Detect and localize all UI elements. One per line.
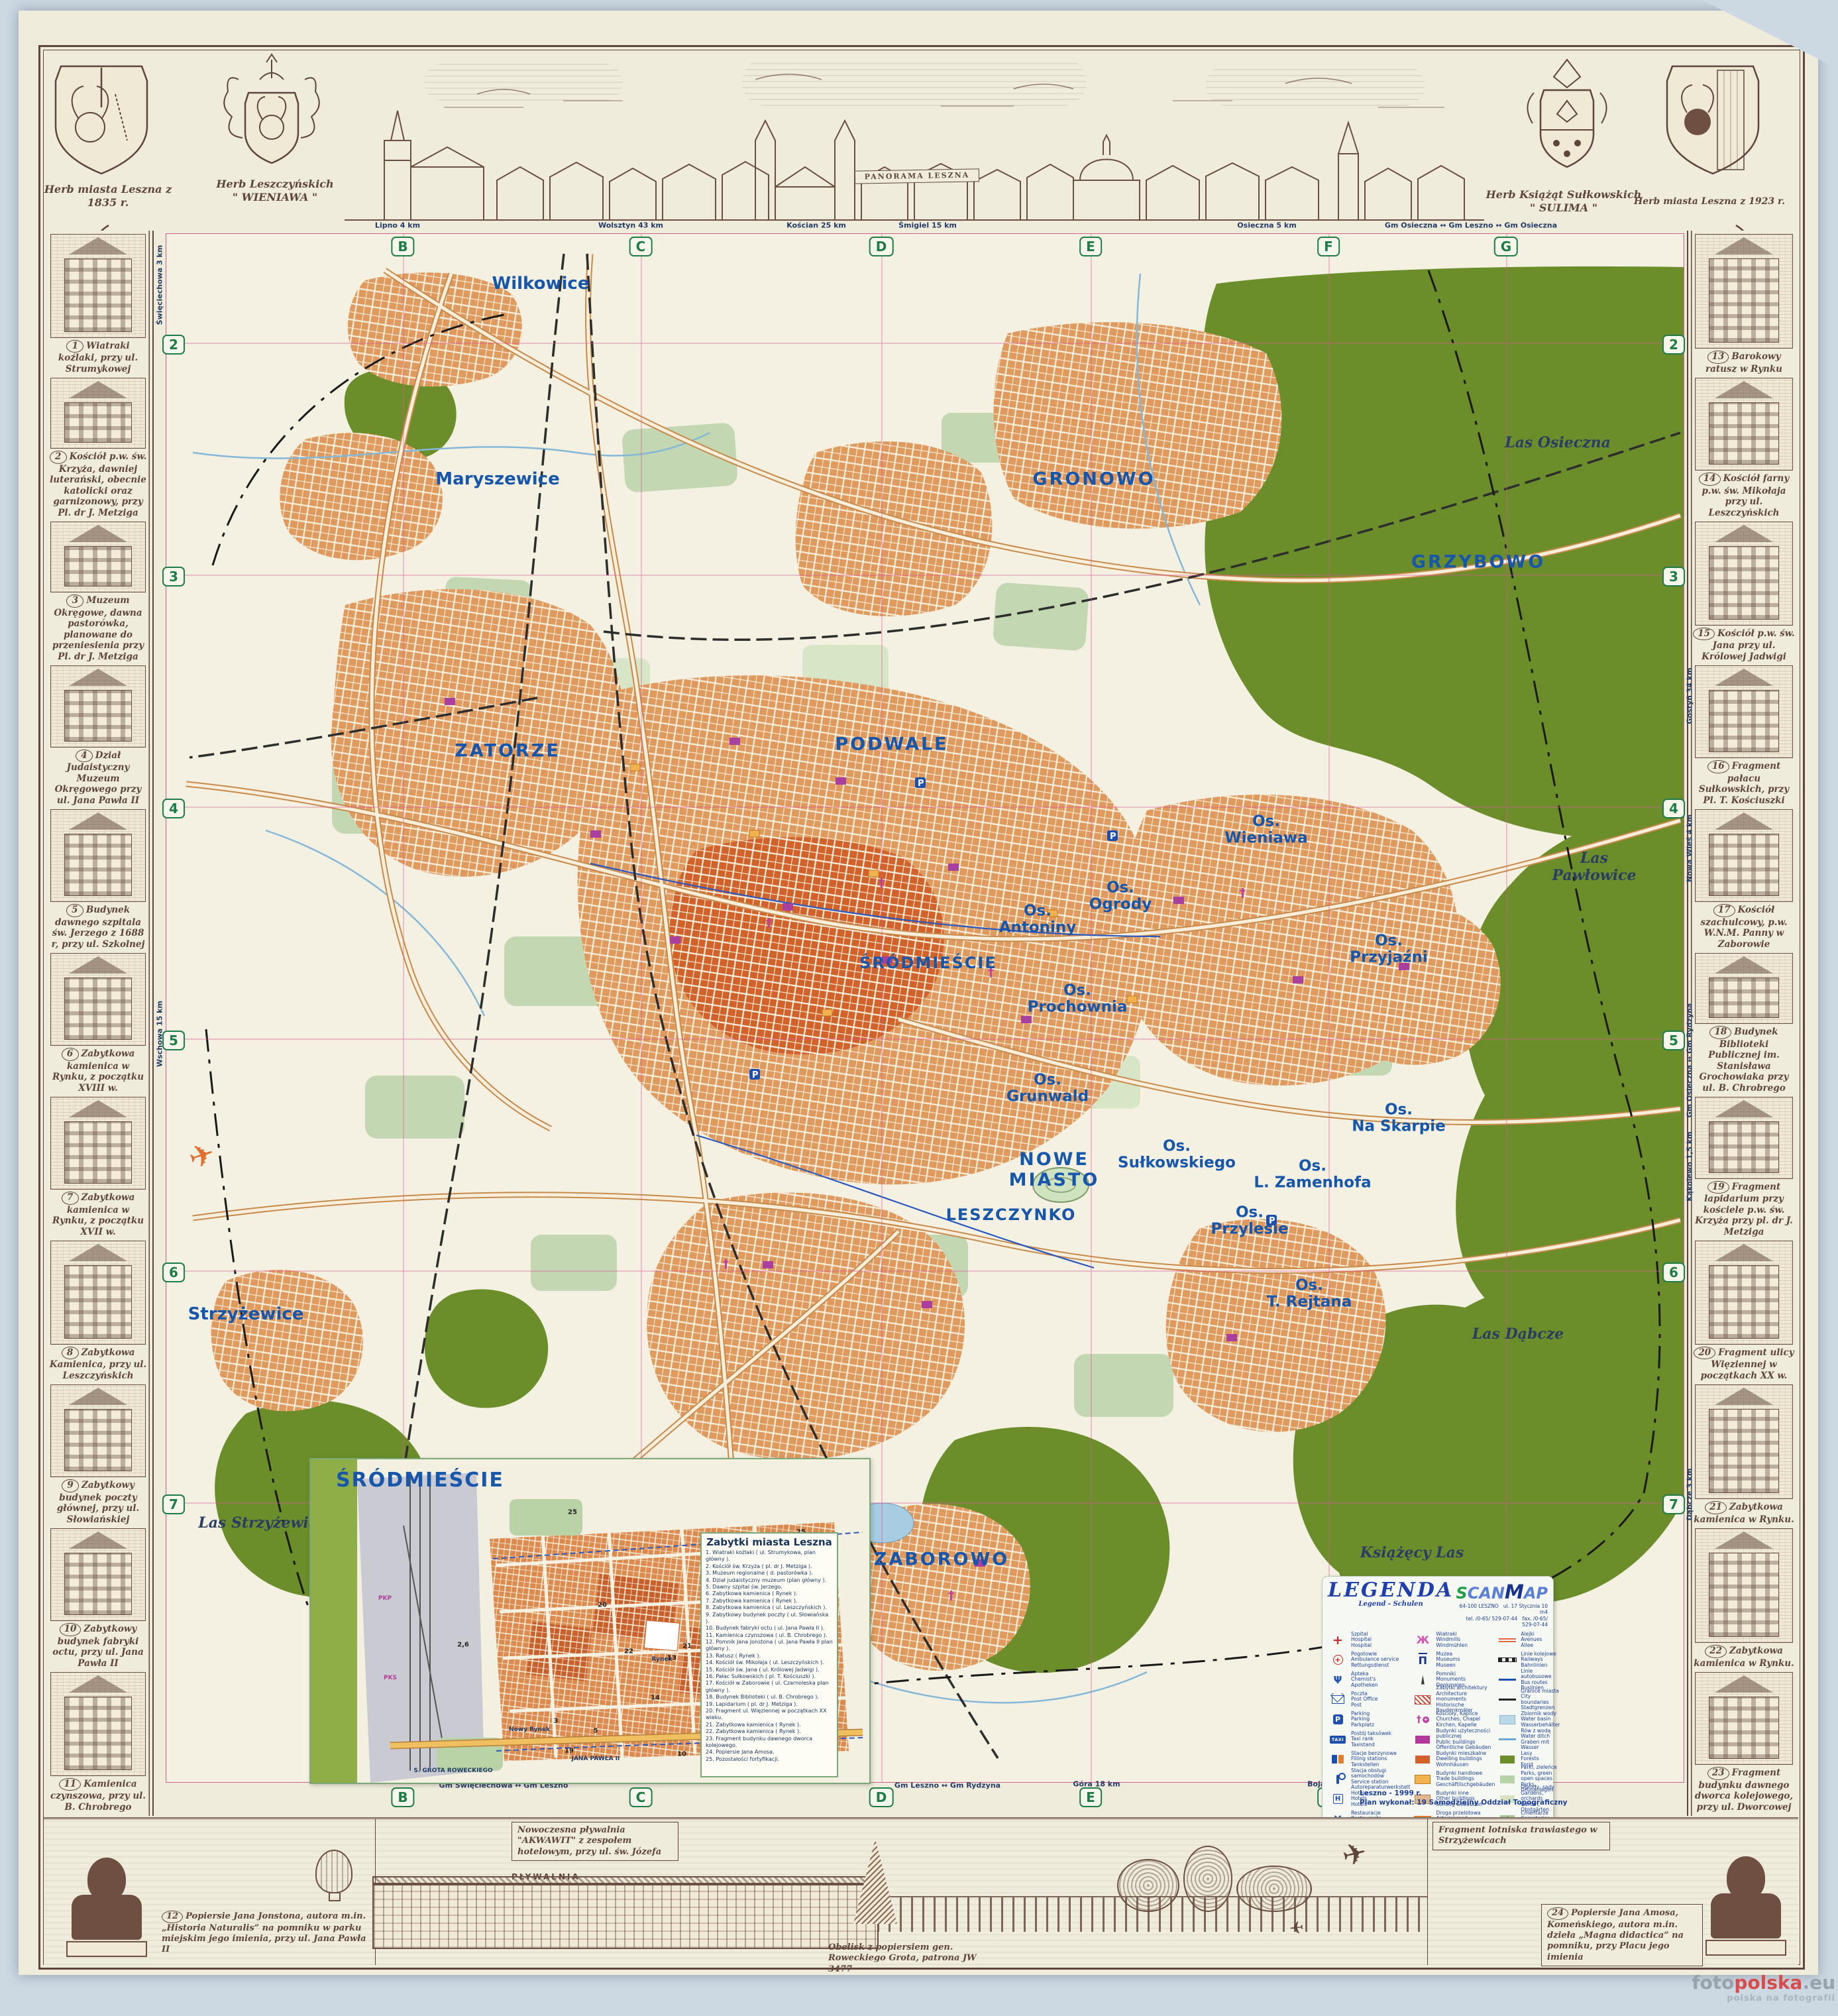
landmark-entry: 17Kościół szachulcowy, p.w. W.N.M. Panny…: [1688, 806, 1800, 950]
legend-column-1: SzpitalHospitalHospital PogotowieAmbulan…: [1328, 1630, 1410, 1849]
left-landmarks-column: 1Wiatraki koźlaki, przy ul. Strumykowej …: [44, 231, 154, 1816]
svg-text:†: †: [766, 916, 772, 930]
legend-text-de: Museen: [1436, 1662, 1455, 1668]
legend-entry-text: AlejkiAvenuesAllee: [1521, 1632, 1542, 1649]
monument-item: 13. Ratusz ( Rynek ).: [706, 1653, 833, 1659]
grid-row-marker: 2: [1662, 335, 1685, 355]
grid-row-marker: 4: [162, 799, 185, 818]
airplane-drawing-icon: ✈: [1338, 1835, 1370, 1874]
landmark-number: 6: [62, 1048, 79, 1061]
legend-column-2: WiatrakiWindmillsWindmühlen MuzeaMuseums…: [1413, 1630, 1495, 1849]
grid-row-marker: 6: [162, 1262, 185, 1282]
legend-entry: Rów z wodąWater ditchGraben mit Wasser: [1497, 1730, 1560, 1750]
legend-icon: [1497, 1673, 1517, 1687]
landmark-number: 8: [62, 1347, 79, 1360]
legend-entry: MuzeaMuseumsMuseen: [1413, 1650, 1495, 1670]
landmark-number: 21: [1705, 1501, 1727, 1514]
inset-number: 25: [568, 1509, 577, 1516]
legend-entry: Linie kolejoweRailwaysBahnlinien: [1497, 1650, 1560, 1670]
landmark-entry: 19Fragment lapidarium przy kościele p.w.…: [1688, 1093, 1800, 1237]
monuments-list-items: 1. Wiatraki koźlaki ( ul. Strumykowa, pl…: [706, 1549, 833, 1763]
monument-item: 5. Dawny szpital św. Jerzego.: [706, 1584, 833, 1591]
legend-title: LEGENDA: [1328, 1581, 1454, 1600]
landmark-sketch: [50, 1528, 146, 1621]
landmark-sketch: [1695, 665, 1793, 758]
legend-entry: Budynki mieszkalneDwelling buildingsWohn…: [1413, 1750, 1495, 1769]
landmark-entry: 21Zabytkowa kamienica w Rynku.: [1688, 1381, 1800, 1525]
landmark-sketch: [50, 234, 146, 338]
landmark-number: 17: [1713, 904, 1735, 917]
landmark-entry: 9Zabytkowy budynek poczty głównej, przy …: [44, 1381, 152, 1525]
landmark-sketch: [1695, 953, 1793, 1024]
coat-of-arms-sulima: [1514, 50, 1620, 183]
edge-label: Święciechowa 3 km: [156, 245, 164, 325]
inset-place-label: PKS: [384, 1675, 397, 1681]
landmark-caption: 18Budynek Biblioteki Publicznej im. Stan…: [1688, 1026, 1800, 1093]
tree-drawing: [1117, 1859, 1179, 1912]
landmark-entry: 2Kościół p.w. św. Krzyża, dawniej lutera…: [44, 374, 152, 518]
legend-text-de: Windmühlen: [1436, 1642, 1468, 1648]
legend-entry: AptekaChemist'sApotheken: [1328, 1670, 1410, 1690]
akwawit-caption: Nowoczesna pływalnia "AKWAWIT" z zespołe…: [512, 1822, 678, 1861]
legend-entry-text: Stacje benzynoweFilling stationsTankstel…: [1351, 1751, 1397, 1768]
grid-row-marker: 7: [1662, 1494, 1685, 1514]
legend-text-pl: Stacja obsługi samochodów: [1351, 1767, 1386, 1779]
landmark-caption: 22Zabytkowa kamienica w Rynku.: [1688, 1645, 1800, 1669]
legend-entry-text: MuzeaMuseumsMuseen: [1436, 1652, 1460, 1669]
legend-entry-text: PogotowieAmbulance serviceRettungsdienst: [1351, 1652, 1399, 1669]
inset-place-label: Nowy Rynek: [509, 1726, 550, 1733]
legend-entry: Budynki handloweTrade buildingsGeschäftl…: [1413, 1769, 1495, 1789]
legend-icon: [1328, 1753, 1348, 1766]
legend-text-de: Geschäftlischgebäuden: [1436, 1781, 1495, 1787]
grid-row-marker: 6: [1662, 1262, 1685, 1282]
legend-entry-text: Budynki mieszkalneDwelling buildingsWohn…: [1436, 1751, 1486, 1768]
edge-label: Góra 18 km: [1073, 1780, 1120, 1789]
legend-text-de: Stadtgrenzen: [1521, 1705, 1554, 1710]
landmark-sketch: [1695, 1097, 1793, 1179]
bottom-vignettes-strip: 12Popiersie Jana Jonstona, autora m.in. …: [44, 1817, 1798, 1965]
legend-icon: [1328, 1733, 1348, 1746]
legend-entry-text: AptekaChemist'sApotheken: [1351, 1671, 1378, 1689]
watermark-part: foto: [1692, 1972, 1734, 1993]
legend-icon: [1497, 1693, 1517, 1707]
landmark-sketch: [1695, 1672, 1793, 1765]
watermark-part: .eu: [1802, 1972, 1835, 1993]
komensky-caption: 24Popiersie Jana Amosa, Komeńskiego, aut…: [1541, 1904, 1703, 1966]
landmark-caption: 5Budynek dawnego szpitala św. Jerzego z …: [44, 904, 152, 950]
inset-number: 20: [598, 1602, 607, 1609]
landmark-number: 23: [1707, 1767, 1729, 1780]
legend-entry: Stacje benzynoweFilling stationsTankstel…: [1328, 1750, 1410, 1769]
monument-item: 11. Kamienica czynszowa ( ul. B. Chrobre…: [706, 1632, 833, 1639]
svg-text:†: †: [948, 1589, 954, 1602]
legend-entry: Zbiornik wodyWater basinWasserbehälter: [1497, 1710, 1560, 1730]
grid-col-marker: C: [629, 237, 653, 256]
landmark-number: 7: [62, 1192, 79, 1205]
coat-of-arms-1835: [52, 61, 151, 180]
publisher-logo: SCANMAP 64-100 LESZNO ul. 17 Stycznia 10…: [1454, 1581, 1548, 1628]
panorama-ribbon: PANORAMA LESZNA: [855, 168, 979, 184]
landmark-sketch: [1695, 1384, 1793, 1499]
legend-text-de: Kirchen, Kapelle: [1436, 1722, 1476, 1728]
landmark-number: 13: [1707, 351, 1729, 364]
legend-text-de: Rettungsdienst: [1351, 1662, 1389, 1668]
legend-entry: WiatrakiWindmillsWindmühlen: [1413, 1630, 1495, 1650]
landmark-caption: 14Kościół farny p.w. św. Mikołaja przy u…: [1688, 473, 1800, 518]
landmark-entry: 4Dział Judaistyczny Muzeum Okręgowego pr…: [44, 662, 152, 806]
grid-col-marker: E: [1079, 237, 1102, 256]
airfield-plane-icon: ✈: [184, 1135, 219, 1176]
edge-label: Śmigiel 15 km: [898, 221, 957, 230]
monument-item: 6. Zabytkowa kamienica ( Rynek ).: [706, 1591, 833, 1597]
legend-text-de: Bahnlinien: [1521, 1662, 1547, 1668]
edge-label: Dąbcze 3 km: [1686, 1469, 1694, 1521]
svg-text:†: †: [879, 876, 885, 890]
monument-item: 22. Zabytkowa kamienica ( Rynek ).: [706, 1728, 833, 1735]
landmark-entry: 23Fragment budynku dawnego dworca kolejo…: [1688, 1669, 1800, 1813]
landmark-number: 20: [1694, 1347, 1715, 1360]
landmark-number: 3: [66, 594, 83, 608]
edge-label: Kąkolewo 1,5 km: [1686, 1131, 1694, 1201]
landmark-entry: 1Wiatraki koźlaki, przy ul. Strumykowej: [44, 231, 152, 374]
coat-of-arms-wieniawa: [219, 53, 325, 179]
komensky-bust-drawing: [1703, 1856, 1789, 1956]
legend-icon: [1328, 1793, 1348, 1806]
landmark-number: 22: [1705, 1645, 1727, 1658]
monument-item: 20. Fragment ul. Więziennej w początkach…: [706, 1708, 833, 1722]
legend-entry-text: Granice miastaCity boundariesStadtgrenze…: [1521, 1689, 1560, 1711]
coat-caption-wieniawa-line2: " WIENIAWA ": [199, 191, 351, 204]
landmark-entry: 22Zabytkowa kamienica w Rynku.: [1688, 1525, 1800, 1669]
legend-text-de: Allee: [1521, 1642, 1533, 1648]
landmark-caption: 15Kościół p.w. św. Jana przy ul. Królowe…: [1688, 628, 1800, 662]
inset-number: 13: [667, 1655, 676, 1662]
coat-caption-wieniawa: Herb Leszczyńskich " WIENIAWA ": [199, 178, 351, 204]
grid-row-marker: 5: [1662, 1031, 1685, 1050]
monument-item: 4. Dział judaistyczny muzeum (plan główn…: [706, 1577, 833, 1584]
grid-col-marker: D: [869, 1787, 894, 1807]
legend-icon: [1328, 1713, 1348, 1726]
legend-entry-text: Kościoły, KapliceChurches, ChapelKirchen…: [1436, 1711, 1480, 1728]
monument-item: 15. Kościół św. Jana ( ul. Królowej Jadw…: [706, 1667, 833, 1673]
legend-icon: [1413, 1693, 1433, 1707]
legend-column-3: AlejkiAvenuesAllee Linie kolejoweRailway…: [1497, 1630, 1560, 1849]
legend-text-de: Parkplatz: [1351, 1722, 1374, 1728]
landmark-sketch: [50, 953, 146, 1046]
city-centre-inset-map: ŚRÓDMIEŚCIE Rynek Nowy Rynek PKP PKS JAN…: [309, 1458, 871, 1784]
airfield-caption: Fragment lotniska trawiastego w Strzyżew…: [1433, 1822, 1610, 1850]
landmark-caption: 2Kościół p.w. św. Krzyża, dawniej lutera…: [44, 451, 152, 518]
inset-street-label: S. GROTA ROWECKIEGO: [413, 1767, 492, 1774]
inset-number: 22: [624, 1648, 633, 1655]
komensky-caption-text: Popiersie Jana Amosa, Komeńskiego, autor…: [1547, 1908, 1684, 1962]
landmark-entry: 5Budynek dawnego szpitala św. Jerzego z …: [44, 806, 152, 950]
landmark-entry: 11Kamienica czynszowa, przy ul. B. Chrob…: [44, 1669, 152, 1813]
legend-entry-text: Linie kolejoweRailwaysBahnlinien: [1521, 1652, 1556, 1669]
monument-item: 12. Pomnik Jana Jonstona ( ul. Jana Pawł…: [706, 1639, 833, 1653]
landmark-caption: 23Fragment budynku dawnego dworca kolejo…: [1688, 1767, 1800, 1813]
svg-text:†: †: [988, 966, 994, 980]
map-credits: Leszno - 1999 r. Plan wykonał: 19 Samodz…: [1360, 1789, 1568, 1807]
landmark-entry: 3Muzeum Okręgowe, dawna pastorówka, plan…: [44, 518, 152, 662]
landmark-entry: 13Barokowy ratusz w Rynku: [1688, 231, 1800, 374]
brand-letter: M: [1505, 1581, 1524, 1603]
grid-col-marker: F: [1317, 237, 1340, 256]
legend-icon: [1497, 1753, 1517, 1766]
grid-row-marker: 3: [1662, 567, 1685, 587]
legend-icon: [1497, 1773, 1517, 1786]
legend-text-de: Hospital: [1351, 1642, 1372, 1648]
landmark-caption-text: Budynek dawnego szpitala św. Jerzego z 1…: [52, 905, 145, 949]
landmark-caption-text: Muzeum Okręgowe, dawna pastorówka, plano…: [52, 595, 144, 661]
legend-icon: [1413, 1733, 1433, 1746]
edge-label: Gostyń 34 km: [1686, 667, 1694, 724]
landmark-caption: 13Barokowy ratusz w Rynku: [1688, 351, 1800, 374]
landmark-entry: 14Kościół farny p.w. św. Mikołaja przy u…: [1688, 374, 1800, 518]
legend-text-de: Öffentliche Gebäuden: [1436, 1744, 1491, 1750]
legend-text-de: Tankstellen: [1351, 1762, 1379, 1767]
landmark-number: 10: [60, 1623, 81, 1636]
rynek-square: [644, 1620, 679, 1651]
legend-icon: [1413, 1653, 1433, 1667]
legend-icon: [1497, 1653, 1517, 1667]
brand-address: 64-100 LESZNO: [1459, 1603, 1498, 1609]
monuments-list-title: Zabytki miasta Leszna: [706, 1536, 833, 1548]
legend-entry: SzpitalHospitalHospital: [1328, 1630, 1410, 1650]
landmark-caption: 1Wiatraki koźlaki, przy ul. Strumykowej: [44, 340, 152, 374]
grid-col-marker: E: [1079, 1787, 1102, 1807]
legend-text-de: Graben mit Wasser: [1521, 1739, 1549, 1751]
legend-icon: [1413, 1773, 1433, 1786]
landmark-sketch: [50, 665, 146, 748]
coat-caption-1923: Herb miasta Leszna z 1923 r.: [1623, 196, 1796, 208]
tree-drawing: [1236, 1866, 1312, 1912]
legend-icon: [1497, 1634, 1517, 1647]
legend-text-de: Taxistand: [1351, 1742, 1375, 1748]
grid-col-marker: B: [391, 1787, 414, 1807]
brand-address2: ul. 17 Stycznia 10 m4: [1503, 1603, 1548, 1615]
jonston-caption: 12Popiersie Jana Jonstona, autora m.in. …: [156, 1908, 375, 1958]
legend-entry-text: SzpitalHospitalHospital: [1351, 1632, 1372, 1649]
landmark-entry: 8Zabytkowa Kamienica, przy ul. Leszczyńs…: [44, 1237, 152, 1381]
landmark-entry: 15Kościół p.w. św. Jana przy ul. Królowe…: [1688, 518, 1800, 662]
legend-icon: [1328, 1773, 1348, 1786]
landmark-sketch: [1695, 234, 1793, 349]
brand-phone: tel. /0-65/ 529-07-44: [1466, 1616, 1518, 1622]
landmark-number: 12: [162, 1911, 183, 1923]
legend-icon: [1328, 1673, 1348, 1687]
landmark-sketch: [50, 378, 146, 449]
inset-street-label: JANA PAWŁA II: [572, 1756, 620, 1762]
landmark-number: 1: [66, 340, 83, 353]
inset-number: 3: [554, 1718, 559, 1725]
strip-divider: [1427, 1819, 1428, 1965]
brand-fax: fax. /0-65/ 529-07-44: [1522, 1616, 1548, 1628]
brand-letter: S: [1456, 1584, 1467, 1602]
inset-number: 21: [682, 1643, 692, 1650]
landmark-entry: 16Fragment pałacu Sułkowskich, przy Pl. …: [1688, 662, 1800, 806]
monument-item: 21. Zabytkowa kamienica ( Rynek ).: [706, 1722, 833, 1728]
swimming-pool-drawing: [372, 1883, 879, 1949]
monument-item: 23. Fragment budynku dawnego dworca kole…: [706, 1736, 833, 1750]
legend-icon: [1497, 1713, 1517, 1726]
landmark-caption-text: Dział Judaistyczny Muzeum Okręgowego prz…: [55, 750, 142, 806]
credits-year: Leszno - 1999 r.: [1360, 1789, 1568, 1799]
legend-text-en: City boundaries: [1521, 1693, 1548, 1705]
legend-entry-text: Zbiornik wodyWater basinWasserbehälter: [1521, 1711, 1560, 1728]
legend-text-de: Post: [1351, 1702, 1362, 1708]
legend-entry: Linie autobusoweBus routesBuslinien: [1497, 1670, 1560, 1690]
legend-text-de: Apotheken: [1351, 1682, 1378, 1688]
legend-icon: [1328, 1693, 1348, 1707]
landmark-sketch: [50, 1097, 146, 1190]
legend-entry-text: PocztaPost OfficePost: [1351, 1691, 1378, 1708]
monument-item: 17. Kościół w Zaborowie ( ul. Czarnolesk…: [706, 1680, 833, 1694]
legend-text-de: Wohnhäusen: [1436, 1762, 1468, 1767]
legend-entry: PogotowieAmbulance serviceRettungsdienst: [1328, 1650, 1410, 1670]
monument-item: 14. Kościół św. Mikołaja ( ul. Leszczyńs…: [706, 1659, 833, 1666]
leszno-city-plan: Herb miasta Leszna z 1835 r. Herb Leszcz…: [0, 0, 1838, 2016]
landmark-number: 9: [62, 1479, 79, 1492]
watermark: fotopolska.eu polska na fotografii: [1683, 1972, 1835, 2003]
landmark-caption: 4Dział Judaistyczny Muzeum Okręgowego pr…: [44, 750, 152, 806]
edge-label: Lipno 4 km: [375, 221, 420, 230]
landmark-caption: 19Fragment lapidarium przy kościele p.w.…: [1688, 1181, 1800, 1237]
edge-label: Wolsztyn 43 km: [598, 221, 663, 230]
brand-letters: CAN: [1468, 1584, 1505, 1602]
landmark-sketch: [1695, 1528, 1793, 1643]
svg-text:P: P: [918, 779, 924, 789]
legend-text-de: Wasserbehälter: [1521, 1722, 1560, 1728]
svg-text:†: †: [723, 1257, 729, 1271]
inset-title: ŚRÓDMIEŚCIE: [336, 1469, 504, 1492]
monument-item: 19. Lapidarium ( pl. dr J. Metziga ).: [706, 1701, 833, 1708]
landmark-caption: 20Fragment ulicy Więziennej w początkach…: [1688, 1347, 1800, 1381]
inset-number: 19: [565, 1748, 574, 1755]
landmark-sketch: [1695, 378, 1793, 471]
svg-text:P: P: [1110, 832, 1116, 842]
legend-entry: Stacja obsługi samochodówService station…: [1328, 1769, 1410, 1789]
landmark-number: 15: [1693, 628, 1715, 641]
tree-drawing: [1183, 1846, 1232, 1912]
monument-item: 8. Zabytkowa kamienica ( ul. Leszczyński…: [706, 1604, 833, 1611]
legend-icon: [1413, 1634, 1433, 1647]
edge-label: Gm Osieczna ↔ Gm Rydzyna: [1686, 1003, 1694, 1118]
grid-row-marker: 2: [162, 335, 185, 355]
landmark-number: 16: [1707, 760, 1729, 773]
edge-label: Osieczna 5 km: [1237, 221, 1296, 230]
svg-text:†: †: [1240, 886, 1246, 900]
legend-icon: [1328, 1653, 1348, 1667]
legend-entry-text: Rów z wodąWater ditchGraben mit Wasser: [1521, 1728, 1560, 1751]
edge-label: Nowa Wieś 4 km: [1686, 814, 1694, 882]
inset-number: 2,6: [457, 1642, 469, 1649]
landmark-number: 18: [1709, 1026, 1731, 1039]
legend-entry: Granice miastaCity boundariesStadtgrenze…: [1497, 1690, 1560, 1710]
monument-item: 10. Budynek fabryki octu ( ul. Jana Pawł…: [706, 1625, 833, 1632]
edge-label: Gm Leszno ↔ Gm Rydzyna: [894, 1781, 1000, 1790]
legend-icon: [1413, 1673, 1433, 1687]
monument-item: 16. Pałac Sułkowskich ( pl. T. Kościuszk…: [706, 1673, 833, 1680]
landmark-caption: 17Kościół szachulcowy, p.w. W.N.M. Panny…: [1688, 904, 1800, 950]
landmark-sketch: [50, 1384, 146, 1477]
legend-icon: [1497, 1733, 1517, 1746]
legend-icon: [1328, 1634, 1348, 1647]
city-panorama-drawing: [345, 54, 1484, 227]
landmark-entry: 6Zabytkowa kamienica w Rynku, z początku…: [44, 950, 152, 1093]
monument-item: 24. Popiersie Jana Amosa.: [706, 1749, 833, 1756]
landmark-sketch: [1695, 1241, 1793, 1345]
landmark-entry: 7Zabytkowa kamienica w Rynku, z początku…: [44, 1093, 152, 1237]
grid-col-marker: D: [869, 237, 894, 256]
landmark-sketch: [50, 1672, 146, 1776]
monument-item: 3. Muzeum regionalne ( d. pastorówka ).: [706, 1570, 833, 1577]
jonston-bust-drawing: [64, 1858, 150, 1957]
legend-entry: Budynki użyteczności publicznejPublic bu…: [1413, 1730, 1495, 1750]
coat-caption-1835: Herb miasta Leszna z 1835 r.: [32, 183, 184, 209]
watermark-part: polska: [1734, 1972, 1802, 1993]
landmark-caption: 11Kamienica czynszowa, przy ul. B. Chrob…: [44, 1778, 152, 1813]
monument-item: 2. Kościół św. Krzyża ( pl. dr J. Metzig…: [706, 1563, 833, 1570]
legend-entry-text: Zabytki architekturyArchitecture monumen…: [1436, 1685, 1495, 1714]
landmark-number: 2: [50, 451, 67, 464]
legend-entry-text: Postój taksówekTaxi rankTaxistand: [1351, 1731, 1391, 1748]
landmark-caption: 16Fragment pałacu Sułkowskich, przy Pl. …: [1688, 760, 1800, 806]
svg-text:P: P: [752, 1070, 759, 1080]
monument-item: 9. Zabytkowy budynek poczty ( ul. Słowia…: [706, 1612, 833, 1626]
credits-maker: Plan wykonał: 19 Samodzielny Oddział Top…: [1360, 1799, 1568, 1808]
legend-entry-text: ParkingParkingParkplatz: [1351, 1711, 1374, 1728]
legend-entry: ParkingParkingParkplatz: [1328, 1710, 1410, 1730]
obelisk-caption: Obelisk z popiersiem gen. Roweckiego Gro…: [823, 1940, 982, 1978]
glider-drawing-icon: ✈: [1288, 1918, 1305, 1939]
landmark-caption: 6Zabytkowa kamienica w Rynku, z początku…: [44, 1048, 152, 1093]
grid-col-marker: C: [629, 1787, 653, 1807]
grid-row-marker: 5: [162, 1031, 185, 1050]
legend-entry-text: WiatrakiWindmillsWindmühlen: [1436, 1632, 1468, 1649]
grid-row-marker: 7: [162, 1494, 185, 1514]
legend-entry: Postój taksówekTaxi rankTaxistand: [1328, 1730, 1410, 1750]
landmark-entry: 18Budynek Biblioteki Publicznej im. Stan…: [1688, 950, 1800, 1093]
monument-item: 25. Pozostałości fortyfikacji.: [706, 1756, 833, 1763]
inset-number: 14: [651, 1695, 660, 1702]
monument-item: 7. Zabytkowa kamienica ( Rynek ).: [706, 1598, 833, 1604]
legend-text-en: Parks, green open spaces: [1521, 1770, 1552, 1782]
inset-number: 5: [594, 1728, 598, 1735]
landmark-number: 4: [76, 750, 93, 763]
landmark-caption: 7Zabytkowa kamienica w Rynku, z początku…: [44, 1192, 152, 1237]
legend-text-en: Architecture monuments: [1436, 1691, 1467, 1703]
inset-place-label: PKP: [378, 1595, 392, 1602]
landmark-entry: 20Fragment ulicy Więziennej w początkach…: [1688, 1237, 1800, 1381]
landmark-sketch: [1695, 809, 1793, 902]
landmark-caption: 8Zabytkowa Kamienica, przy ul. Leszczyńs…: [44, 1347, 152, 1381]
landmark-number: 5: [66, 904, 83, 917]
watermark-tagline: polska na fotografii: [1683, 1993, 1835, 2003]
landmark-caption: 10Zabytkowy budynek fabryki octu, przy u…: [44, 1623, 152, 1669]
landmark-caption: 3Muzeum Okręgowe, dawna pastorówka, plan…: [44, 594, 152, 662]
legend-icon: [1413, 1713, 1433, 1726]
legend-entry: AlejkiAvenuesAllee: [1497, 1630, 1560, 1650]
monument-item: 1. Wiatraki koźlaki ( ul. Strumykowa, pl…: [706, 1549, 833, 1563]
landmark-caption: 9Zabytkowy budynek poczty głównej, przy …: [44, 1479, 152, 1525]
landmark-sketch: [50, 522, 146, 592]
coat-of-arms-1923: [1663, 61, 1762, 180]
grid-col-marker: B: [391, 237, 414, 256]
monument-item: 18. Budynek Biblioteki ( ul. B. Chrobreg…: [706, 1694, 833, 1701]
legend-text-pl: Budynki użyteczności publicznej: [1436, 1728, 1490, 1740]
